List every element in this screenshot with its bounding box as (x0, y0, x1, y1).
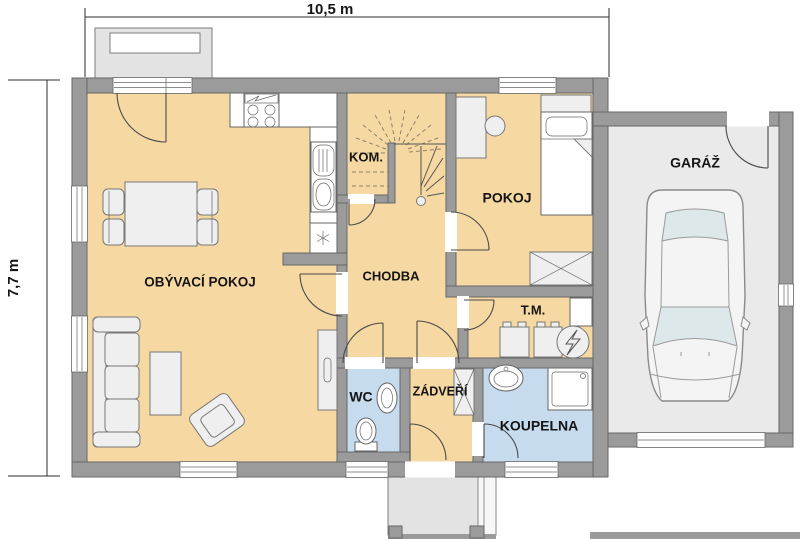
window-bath-bottom (505, 462, 558, 478)
label-pantry: KOM. (349, 149, 383, 164)
shower-icon (548, 368, 592, 410)
window-bedroom (499, 78, 556, 94)
bed (541, 112, 592, 215)
opening-garage-gate (637, 433, 765, 448)
wall-wc-shaft (337, 452, 410, 462)
floor-plan-svg: 10,5 m 7,7 m OBÝVACÍ POKOJ KOM. CHODBA P… (0, 0, 800, 539)
opening-pantry (348, 194, 374, 204)
sofa (93, 317, 140, 447)
window-living-bottom (180, 462, 237, 478)
opening-tech (457, 296, 469, 328)
toilet-icon (355, 418, 377, 451)
wardrobe (530, 252, 592, 285)
opening-bedroom (445, 212, 457, 252)
shelf (541, 95, 591, 112)
window-garage-right (779, 284, 794, 306)
label-vestibule: ZÁDVEŘÍ (413, 383, 468, 398)
opening-living-hall (336, 272, 348, 314)
driveway-edge (590, 532, 800, 539)
opening-entrance (405, 462, 455, 478)
coffee-table (150, 352, 181, 415)
tech-shelf (570, 298, 592, 326)
kitchen-sink-icon (311, 142, 336, 212)
label-hall: CHODBA (362, 268, 420, 283)
stair-stringer (388, 143, 395, 203)
bath-sink-icon (489, 365, 523, 391)
opening-bath (472, 422, 484, 456)
garage-wall-right (779, 112, 793, 447)
wc-sink-icon (377, 383, 397, 413)
stair-newel (417, 197, 426, 206)
washer-icon (500, 322, 529, 357)
label-garage: GARÁŽ (670, 154, 720, 171)
wall-bedroom-left (446, 93, 456, 286)
wall-bedroom-bottom (446, 286, 593, 297)
dishwasher-icon (310, 223, 337, 253)
window-terrace-door (113, 78, 192, 94)
wall-right (593, 78, 608, 477)
wall-wc-vestibule (400, 368, 410, 462)
opening-vestibule (413, 357, 455, 369)
desk (456, 97, 486, 158)
dimension-height: 7,7 m (5, 80, 60, 476)
label-wc: WC (349, 389, 372, 405)
wall-left (72, 78, 87, 477)
window-left-2 (72, 316, 88, 372)
porch-post (389, 526, 402, 538)
window-wc-bottom (346, 462, 388, 478)
dining-table (125, 182, 197, 246)
label-bathroom: KOUPELNA (500, 418, 579, 434)
label-bedroom: POKOJ (482, 190, 531, 206)
desk-chair (485, 116, 505, 136)
boiler-icon (557, 326, 589, 358)
dimension-width-label: 10,5 m (307, 1, 354, 18)
entry-porch (388, 477, 496, 539)
label-tech-room: T.M. (521, 302, 546, 317)
cabinet (318, 330, 337, 410)
label-living-room: OBÝVACÍ POKOJ (144, 275, 256, 290)
floor-plan-image: 10,5 m 7,7 m OBÝVACÍ POKOJ KOM. CHODBA P… (0, 0, 800, 539)
window-left-1 (72, 186, 88, 242)
car-icon (640, 190, 750, 401)
porch-post (470, 526, 484, 538)
opening-garage-side (727, 112, 769, 127)
wall-kitchen-stub (283, 253, 347, 265)
opening-wc (345, 357, 385, 369)
stove-icon (244, 93, 279, 127)
terrace (95, 28, 212, 80)
dimension-height-label: 7,7 m (5, 259, 22, 297)
